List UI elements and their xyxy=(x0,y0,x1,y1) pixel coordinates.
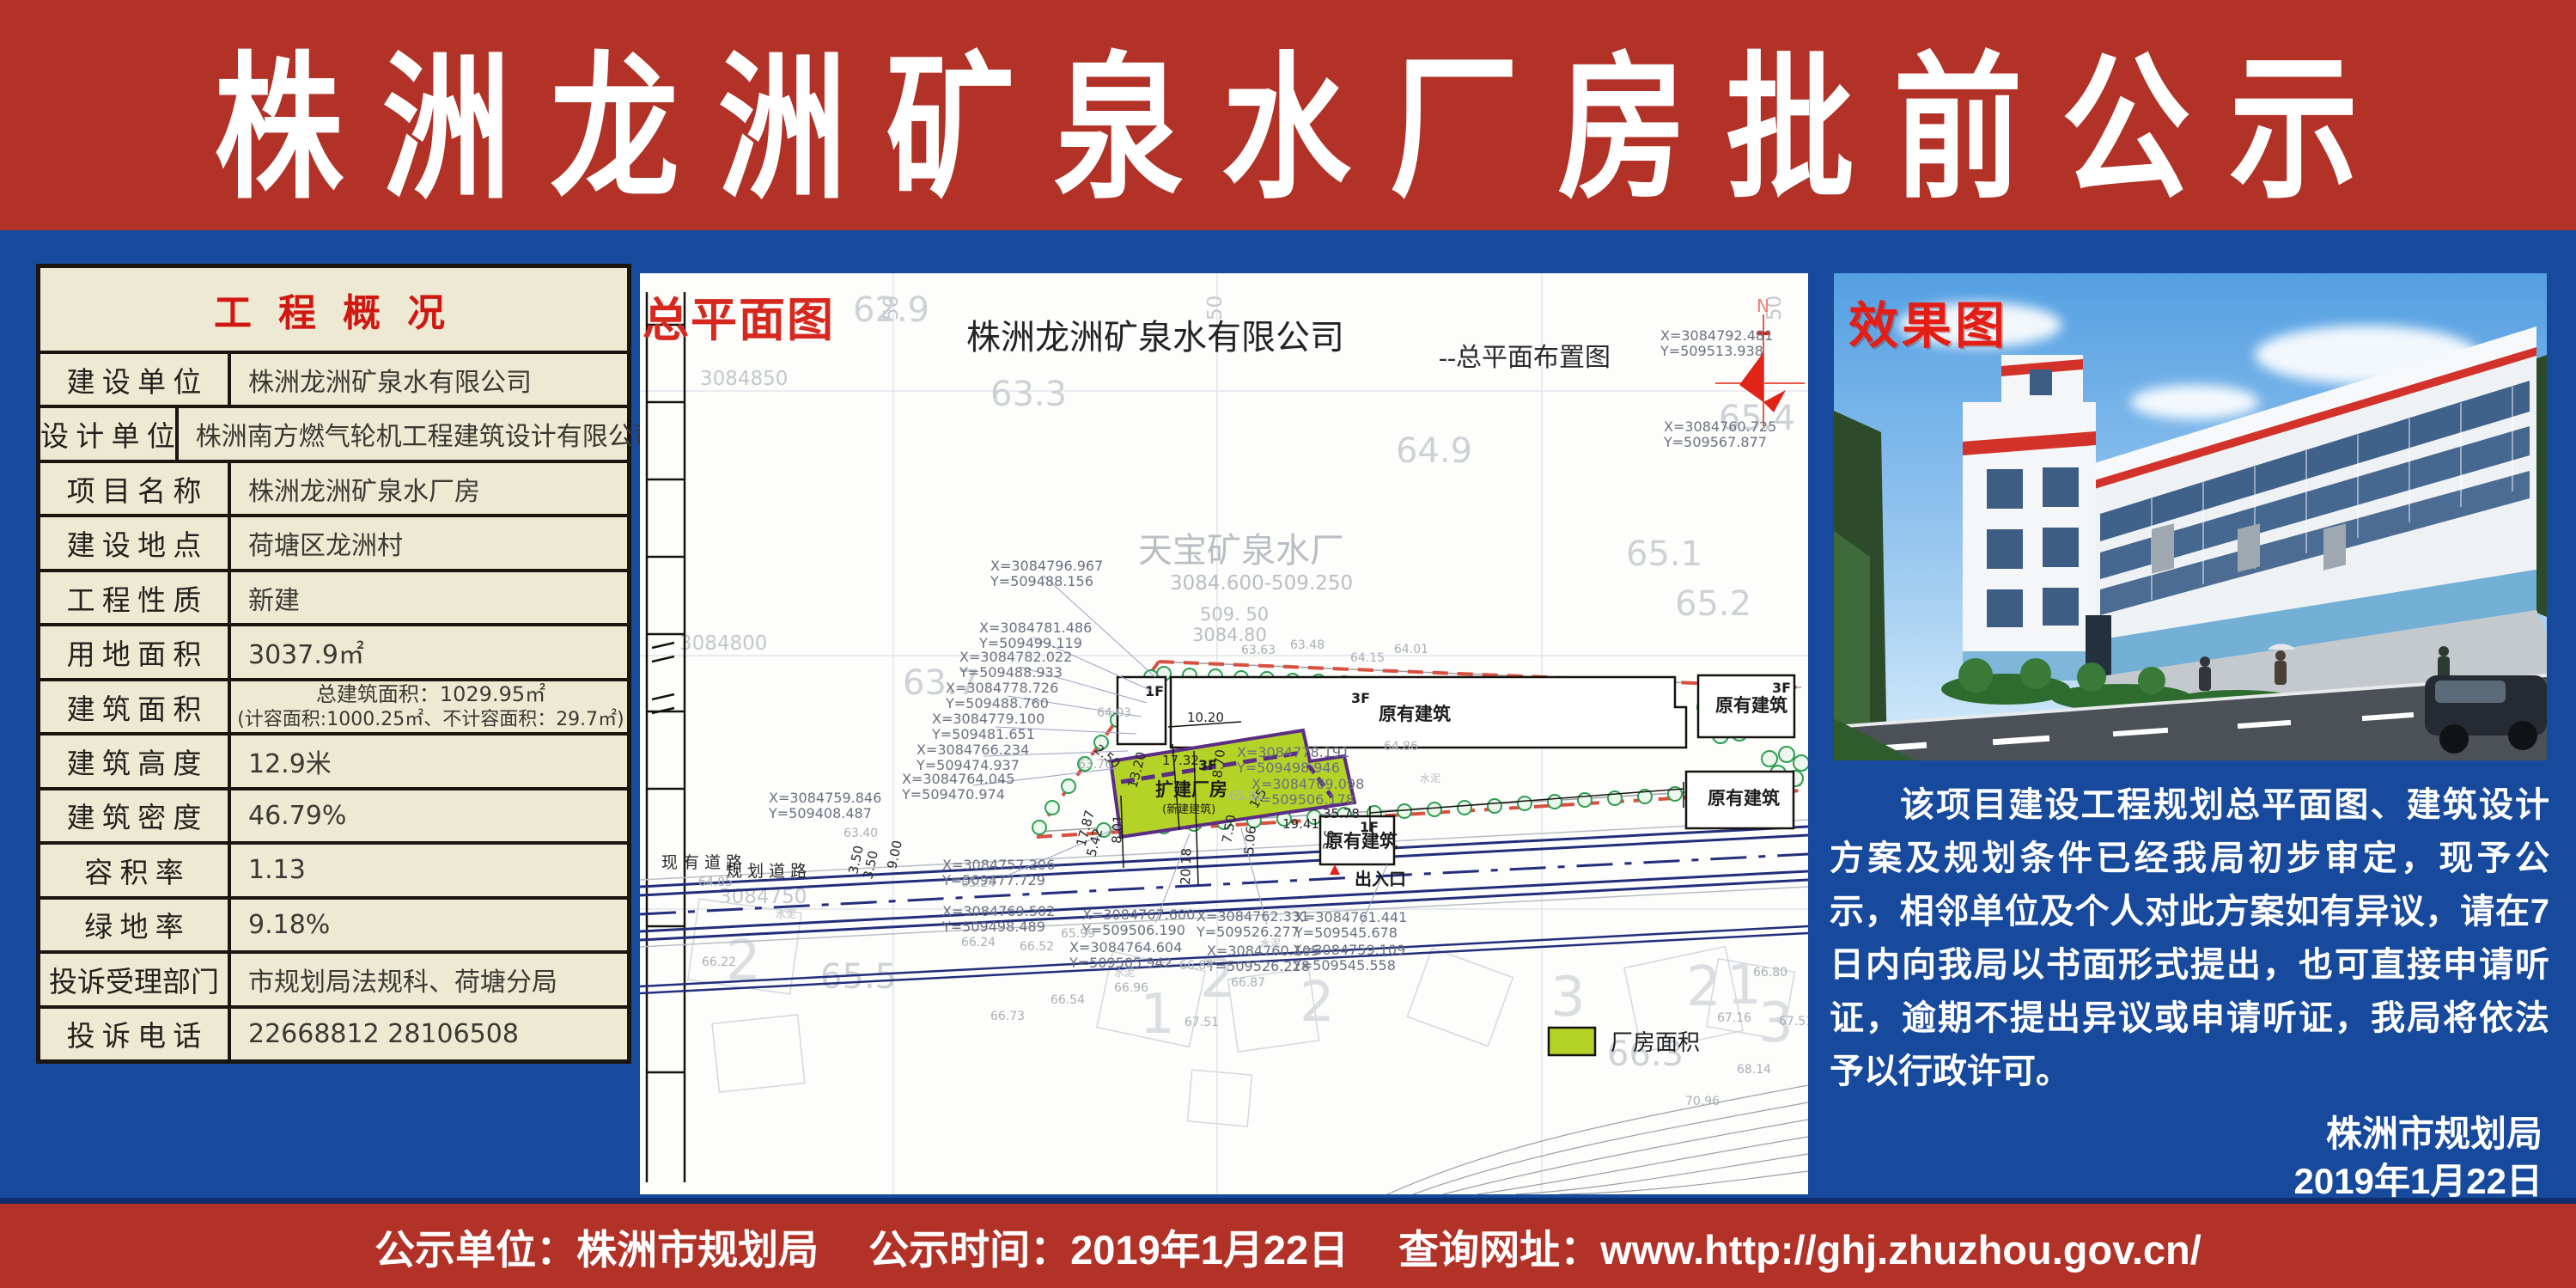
grid-inline-label: 509. 50 xyxy=(1200,604,1269,625)
coordinate-label: X=3084792.481Y=509513.938 xyxy=(1659,327,1773,359)
row-value: 1.13 xyxy=(231,845,627,895)
spot-elevation: 63.48 xyxy=(1290,638,1325,652)
spot-elevation: 67.51 xyxy=(1779,1015,1808,1029)
parcel-number: 2 xyxy=(1686,955,1721,1019)
dimension: 19.41 xyxy=(1282,816,1319,832)
row-label: 容 积 率 xyxy=(40,845,231,895)
coordinate-label: X=3084778.191Y=509498.946 xyxy=(1236,744,1349,776)
dimension: 8.01 xyxy=(1109,815,1126,844)
spot-elevation: 63.40 xyxy=(843,827,878,840)
drawing-frame-strip xyxy=(647,292,685,1182)
coordinate-label: X=3084769.098Y=509506.178 xyxy=(1251,776,1364,808)
coordinate-label: X=3084759.109Y=509545.558 xyxy=(1292,942,1405,974)
big-elevation: 64.9 xyxy=(1396,431,1472,471)
table-row: 建 设 地 点荷塘区龙洲村 xyxy=(40,517,627,571)
project-overview-table: 工 程 概 况 建 设 单 位株洲龙洲矿泉水有限公司 设 计 单 位株洲南方燃气… xyxy=(36,264,631,1064)
big-elevation: 63.3 xyxy=(990,375,1067,414)
table-row: 绿 地 率9.18% xyxy=(40,900,627,954)
row-value: 9.18% xyxy=(231,900,627,950)
spot-elevation: 66.54 xyxy=(1050,993,1085,1007)
dimension: 9.00 xyxy=(884,839,905,870)
table-row: 设 计 单 位株洲南方燃气轮机工程建筑设计有限公司 xyxy=(40,408,627,462)
siteplan-subtitle: --总平面布置图 xyxy=(1439,344,1611,372)
table-row: 项 目 名 称株洲龙洲矿泉水厂房 xyxy=(40,463,627,517)
dimension: 5.06 xyxy=(1241,826,1259,856)
row-label: 投 诉 电 话 xyxy=(40,1009,231,1059)
spot-elevation: 65.24 xyxy=(961,876,996,890)
coordinate-label: X=3084759.846Y=509408.487 xyxy=(768,790,881,821)
spot-elevation: 65.03 xyxy=(1229,790,1264,803)
road-planned-label: 规 划 道 路 xyxy=(726,862,807,881)
row-value: 22668812 28106508 xyxy=(231,1009,627,1059)
spot-elevation: 66.73 xyxy=(990,1010,1025,1023)
existing-building-label: 原有建筑 xyxy=(1708,788,1780,809)
coordinate-label: X=3084760.725Y=509567.877 xyxy=(1663,418,1776,450)
row-label: 投诉受理部门 xyxy=(40,954,231,1004)
row-label: 建 设 单 位 xyxy=(40,354,231,405)
render-panel-label: 效果图 xyxy=(1848,285,2008,357)
dimension: 10.20 xyxy=(1187,710,1224,725)
table-row: 工 程 性 质新建 xyxy=(40,572,627,626)
spot-elevation: 68.14 xyxy=(1737,1063,1771,1077)
grid-inline-label: 3084.80 xyxy=(1192,625,1267,645)
notice-paragraph: 该项目建设工程规划总平面图、建筑设计方案及规划条件已经我局初步审定，现予公示，相… xyxy=(1830,778,2549,1098)
coordinate-label: X=3084779.100Y=509481.651 xyxy=(931,711,1044,742)
spot-elevation: 66.52 xyxy=(1020,940,1054,954)
row-value: 3037.9㎡ xyxy=(231,626,627,677)
grid-label: 3084850 xyxy=(700,368,788,390)
siteplan-title: 株洲龙洲矿泉水有限公司 xyxy=(966,318,1344,357)
existing-building-label: 原有建筑 xyxy=(1379,704,1451,724)
coordinate-label: X=3084762.331Y=509526.277 xyxy=(1196,908,1309,940)
big-elevation: 65.1 xyxy=(1626,534,1702,574)
row-label: 绿 地 率 xyxy=(40,900,231,950)
spot-elevation: 66.96 xyxy=(1114,981,1148,995)
row-value: 株洲龙洲矿泉水有限公司 xyxy=(231,354,627,405)
row-label: 建 筑 高 度 xyxy=(40,736,231,786)
footer-bar: 公示单位：株洲市规划局 公示时间：2019年1月22日 查询网址：www.htt… xyxy=(0,1198,2576,1288)
coordinate-label: X=3084782.022Y=509488.933 xyxy=(959,649,1072,681)
table-row: 建 筑 高 度12.9米 xyxy=(40,736,627,790)
row-value: 株洲南方燃气轮机工程建筑设计有限公司 xyxy=(179,408,660,459)
row-value: 总建筑面积：1029.95㎡ (计容面积:1000.25㎡、不计容面积：29.7… xyxy=(231,681,627,732)
siteplan-drawing: 3084850 3084800 3084750 50 50 50 株洲龙洲矿泉水… xyxy=(640,273,1808,1194)
new-building-sub: (新建建筑) xyxy=(1162,803,1215,816)
cement-label: 水泥 xyxy=(1260,937,1281,949)
spot-elevation: 66.24 xyxy=(961,936,996,949)
contour-lines xyxy=(1387,1085,1808,1194)
coordinate-label: X=3084767.600Y=509506.190 xyxy=(1081,906,1195,938)
cement-label: 水泥 xyxy=(1114,967,1135,979)
notice-signature: 株洲市规划局 2019年1月22日 xyxy=(2053,1110,2543,1205)
row-value: 46.79% xyxy=(231,791,627,841)
site-code: 3084.600-509.250 xyxy=(1170,572,1353,595)
dimension: 20.18 xyxy=(1178,848,1194,886)
coordinate-label: X=3084764.045Y=509470.974 xyxy=(901,771,1014,803)
site-name: 天宝矿泉水厂 xyxy=(1138,531,1344,570)
page-title: 株 洲 龙 洲 矿 泉 水 厂 房 批 前 公 示 xyxy=(214,2,2361,229)
row-value: 市规划局法规科、荷塘分局 xyxy=(231,954,627,1004)
spot-elevation: 64.85 xyxy=(698,876,733,889)
new-building-label: 扩建厂房 xyxy=(1155,779,1227,800)
spot-elevation: 63.63 xyxy=(1241,644,1276,657)
parcel-number: 2 xyxy=(1300,971,1335,1035)
coordinate-label: X=3084778.726Y=509488.760 xyxy=(945,680,1058,711)
table-row: 用 地 面 积3037.9㎡ xyxy=(40,626,627,681)
total-floor-area: 总建筑面积：1029.95㎡ xyxy=(316,681,545,707)
row-label: 用 地 面 积 xyxy=(40,626,231,677)
parcel-number: 3 xyxy=(1550,966,1586,1029)
floor-label: 3F xyxy=(1772,680,1791,696)
parcel-number: 1 xyxy=(1726,954,1762,1017)
spot-elevation: 65.99 xyxy=(1061,927,1095,941)
spot-elevation: 64.86 xyxy=(1384,740,1418,754)
spot-elevation: 66.87 xyxy=(1231,976,1265,990)
floor-area-detail: (计容面积:1000.25㎡、不计容面积：29.7㎡) xyxy=(237,707,624,733)
spot-elevation: 66.80 xyxy=(1753,966,1787,980)
table-header: 工 程 概 况 xyxy=(40,268,627,354)
coordinate-label: X=3084769.502Y=509498.489 xyxy=(941,903,1055,935)
legend-label: 厂房面积 xyxy=(1611,1030,1700,1056)
spot-elevation: 64.01 xyxy=(1394,643,1428,656)
siteplan-panel: 3084850 3084800 3084750 50 50 50 株洲龙洲矿泉水… xyxy=(640,273,1808,1194)
coordinate-label: X=3084781.486Y=509499.119 xyxy=(978,620,1092,651)
coordinate-label: X=3084757.206Y=509477.729 xyxy=(941,857,1055,888)
table-row: 投诉受理部门市规划局法规科、荷塘分局 xyxy=(40,954,627,1008)
dimension: 3.6 xyxy=(1320,829,1337,851)
row-value: 12.9米 xyxy=(231,736,627,786)
spot-elevation: 63.76 xyxy=(1078,758,1112,772)
spot-elevation: 66.22 xyxy=(702,955,736,969)
table-row: 建 筑 面 积 总建筑面积：1029.95㎡ (计容面积:1000.25㎡、不计… xyxy=(40,681,627,736)
row-label: 建 设 地 点 xyxy=(40,517,231,568)
row-label: 项 目 名 称 xyxy=(40,463,231,514)
floor-label: 3F xyxy=(1351,690,1370,706)
signer-name: 株洲市规划局 xyxy=(2053,1110,2543,1157)
footer-unit: 公示单位：株洲市规划局 xyxy=(375,1217,819,1276)
table-row: 建 设 单 位株洲龙洲矿泉水有限公司 xyxy=(40,354,627,408)
existing-building-label: 原有建筑 xyxy=(1715,695,1787,716)
cement-label: 水泥 xyxy=(1420,772,1440,784)
row-value: 荷塘区龙洲村 xyxy=(231,517,627,568)
north-label: N xyxy=(1757,296,1769,316)
spot-elevation: 67.16 xyxy=(1717,1011,1751,1025)
legend: 厂房面积 xyxy=(1549,1028,1700,1056)
row-label: 工 程 性 质 xyxy=(40,572,231,623)
big-elevation: 62.9 xyxy=(853,290,929,330)
dimension: 17.32 xyxy=(1162,753,1199,768)
siteplan-panel-label: 总平面图 xyxy=(642,282,835,350)
footer-url: 查询网址：www.http://ghj.zhuzhou.gov.cn/ xyxy=(1398,1217,2201,1276)
grid-label-vertical: 50 xyxy=(1204,296,1227,320)
spot-elevation: 66.84 xyxy=(1179,959,1214,973)
spot-elevation: 64.15 xyxy=(1350,651,1385,665)
row-value: 新建 xyxy=(231,572,627,623)
spot-elevation: 67.51 xyxy=(1184,1016,1219,1029)
big-elevation: 65.2 xyxy=(1675,584,1751,624)
row-label: 设 计 单 位 xyxy=(40,408,179,459)
footer-time: 公示时间：2019年1月22日 xyxy=(868,1217,1349,1276)
spot-elevation: 64.03 xyxy=(1097,706,1131,720)
cement-label: 水泥 xyxy=(776,908,796,920)
coordinate-label: X=3084766.234Y=509474.937 xyxy=(916,742,1029,773)
row-value: 株洲龙洲矿泉水厂房 xyxy=(231,463,627,514)
title-banner: 株 洲 龙 洲 矿 泉 水 厂 房 批 前 公 示 xyxy=(0,0,2576,230)
row-label: 建 筑 密 度 xyxy=(40,791,231,841)
table-row: 投 诉 电 话22668812 28106508 xyxy=(40,1009,627,1059)
spot-elevation: 70.96 xyxy=(1685,1095,1720,1108)
coordinate-label: X=3084796.967Y=509488.156 xyxy=(990,558,1103,589)
grid-label: 3084800 xyxy=(679,632,767,655)
row-label: 建 筑 面 积 xyxy=(40,681,231,732)
coordinate-label: X=3084761.441Y=509545.678 xyxy=(1294,909,1407,941)
table-row: 容 积 率1.13 xyxy=(40,845,627,899)
dimension: 35.78 xyxy=(1323,806,1360,821)
table-row: 建 筑 密 度46.79% xyxy=(40,791,627,845)
entrance-label: 出入口 xyxy=(1355,869,1406,889)
floor-label: 1F xyxy=(1145,683,1164,699)
